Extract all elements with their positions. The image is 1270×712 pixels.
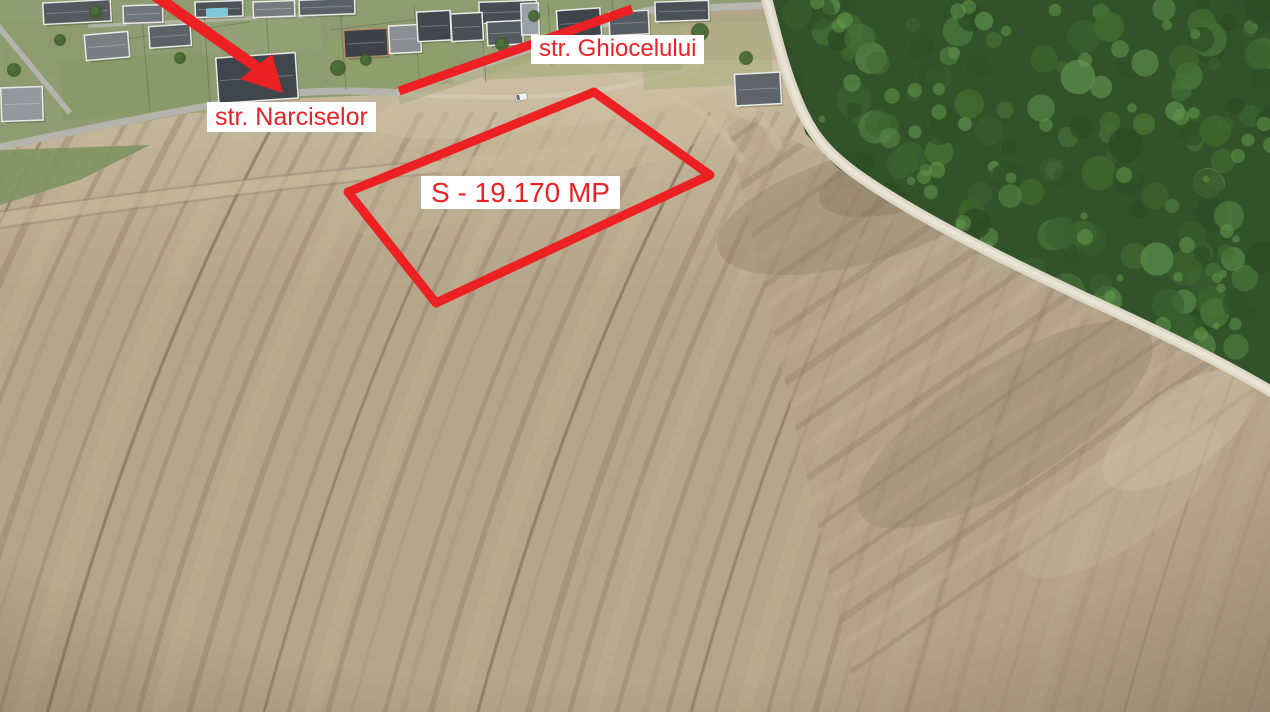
aerial-photo-scene [0, 0, 1270, 712]
street-label-ghiocelului: str. Ghiocelului [531, 35, 704, 64]
street-label-ghiocelului-text: str. Ghiocelului [539, 35, 696, 62]
lot-area-label-text: S - 19.170 MP [431, 177, 610, 208]
street-label-narciselor: str. Narciselor [207, 102, 376, 132]
vignette [0, 0, 1270, 712]
lot-area-label: S - 19.170 MP [421, 176, 620, 209]
aerial-photo: str. Ghiocelului str. Narciselor S - 19.… [0, 0, 1270, 712]
street-label-narciselor-text: str. Narciselor [215, 103, 368, 131]
